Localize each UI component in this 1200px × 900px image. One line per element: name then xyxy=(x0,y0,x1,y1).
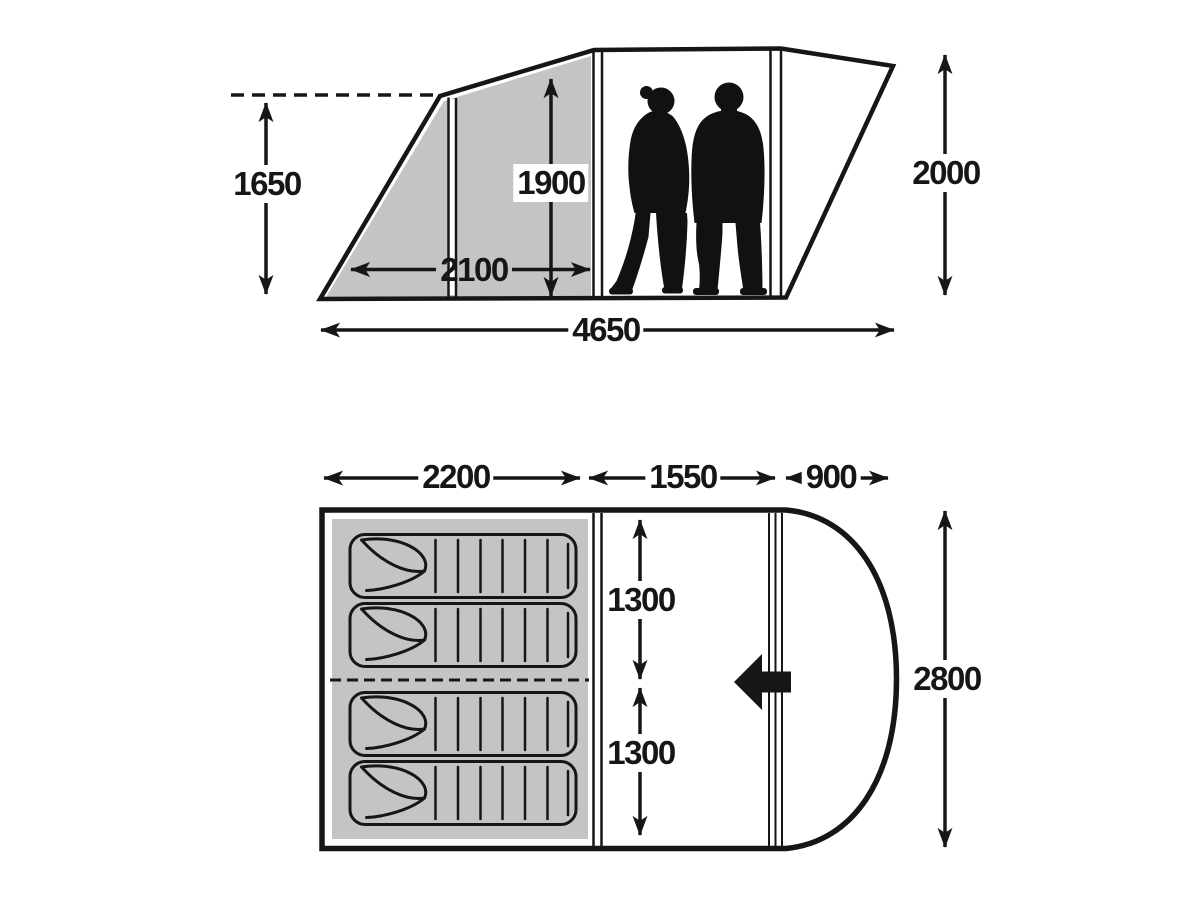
diagram-drawing xyxy=(0,0,1200,900)
dim-label-1900: 1900 xyxy=(513,164,588,202)
dim-label-2000: 2000 xyxy=(908,154,983,192)
dim-label-1300-lower: 1300 xyxy=(603,734,678,772)
floor-plan xyxy=(322,478,945,849)
divider-gap-1 xyxy=(595,53,601,296)
tent-dimensions-diagram: 1650 1900 2100 4650 2000 2200 1550 900 1… xyxy=(0,0,1200,900)
dim-label-2200: 2200 xyxy=(418,458,493,496)
dim-label-1550: 1550 xyxy=(645,458,720,496)
dim-label-1300-upper: 1300 xyxy=(603,581,678,619)
dim-label-4650: 4650 xyxy=(568,311,643,349)
dim-label-1650: 1650 xyxy=(229,165,304,203)
dim-label-2800: 2800 xyxy=(909,660,984,698)
divider-gap-2 xyxy=(772,51,780,296)
dim-label-2100: 2100 xyxy=(436,251,511,289)
dim-label-900: 900 xyxy=(802,458,861,496)
